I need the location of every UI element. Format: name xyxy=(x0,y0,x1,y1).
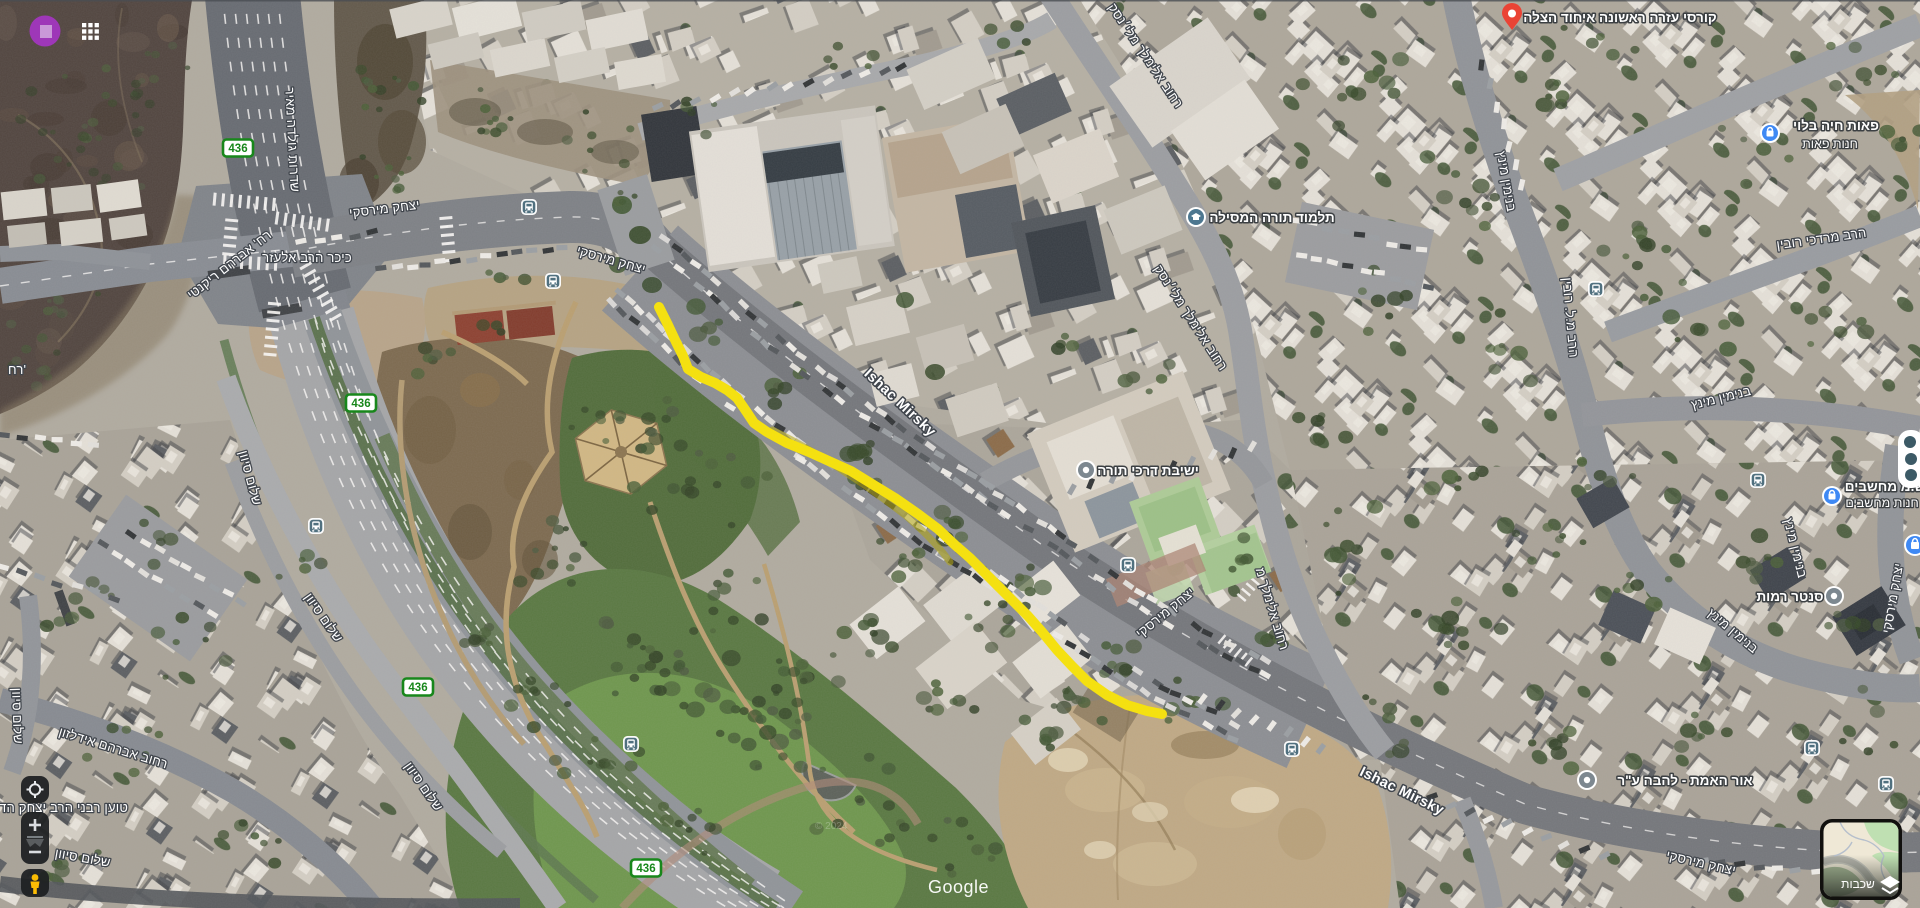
svg-text:סנטר רמות: סנטר רמות xyxy=(1756,589,1823,604)
svg-text:© 2024: © 2024 xyxy=(815,821,848,832)
svg-text:חנות מחשבים: חנות מחשבים xyxy=(1845,496,1918,510)
svg-text:שכבות: שכבות xyxy=(1841,877,1875,891)
svg-text:שלום סיוון: שלום סיוון xyxy=(9,687,26,744)
svg-text:כיכר הרב אלעזר: כיכר הרב אלעזר xyxy=(262,250,352,265)
svg-text:רח': רח' xyxy=(8,362,26,377)
svg-text:קורסי עזרה ראשונה איחוד הצלה: קורסי עזרה ראשונה איחוד הצלה xyxy=(1523,10,1717,25)
svg-text:אור האמת - להבה ע"ר: אור האמת - להבה ע"ר xyxy=(1617,773,1752,788)
svg-text:Google: Google xyxy=(928,877,989,897)
svg-text:חנות פאות: חנות פאות xyxy=(1802,137,1858,151)
svg-text:טוען רבני הרב יצחק הדר: טוען רבני הרב יצחק הדר xyxy=(0,800,128,815)
svg-text:פאות חיה בלוי: פאות חיה בלוי xyxy=(1793,118,1879,133)
svg-text:ישיבת דרכי תורה: ישיבת דרכי תורה xyxy=(1097,463,1199,478)
svg-text:תלמוד תורה המסילה: תלמוד תורה המסילה xyxy=(1209,210,1334,225)
